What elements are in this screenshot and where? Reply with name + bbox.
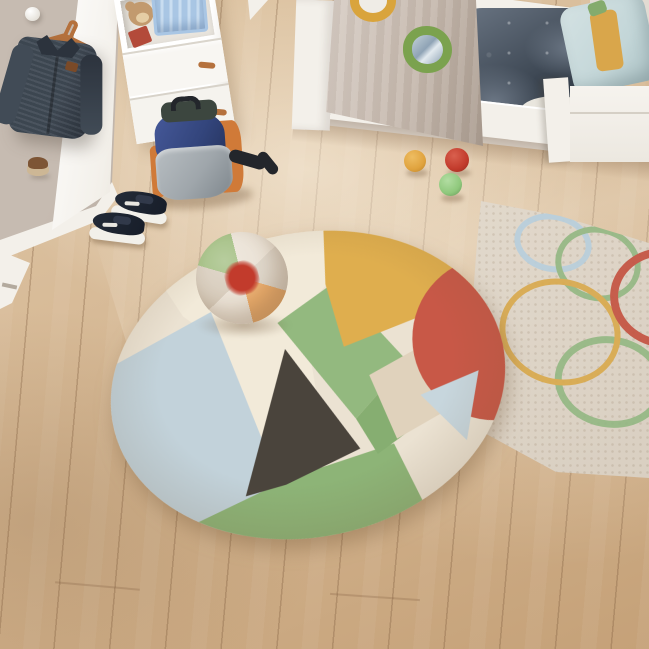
backpack xyxy=(146,96,263,208)
porthole-green-mirror xyxy=(403,26,452,73)
circle-red xyxy=(608,245,649,351)
sneaker-logo xyxy=(102,223,117,227)
pillow-stripe xyxy=(589,9,624,72)
bed-footboard xyxy=(570,86,649,162)
jacket-on-hanger xyxy=(0,12,111,146)
pom-ball-red xyxy=(445,148,469,172)
hedgehog-plush xyxy=(27,157,50,177)
hedgehog-back xyxy=(28,157,48,169)
kids-room-photo xyxy=(0,0,649,649)
sneaker-left xyxy=(88,210,149,249)
footboard-seam xyxy=(570,112,649,114)
jacket-sleeve-right xyxy=(80,55,102,135)
blue-toy-crate xyxy=(151,0,208,36)
drawer-handle xyxy=(198,61,215,68)
sneaker-logo xyxy=(124,201,139,206)
backpack-handle xyxy=(170,95,201,111)
pom-ball-orange xyxy=(404,150,426,172)
pom-ball-green xyxy=(439,173,462,196)
porthole-yellow-ring xyxy=(350,0,396,22)
backpack-front-pocket xyxy=(155,144,234,201)
ball-red-pompom xyxy=(221,257,262,298)
